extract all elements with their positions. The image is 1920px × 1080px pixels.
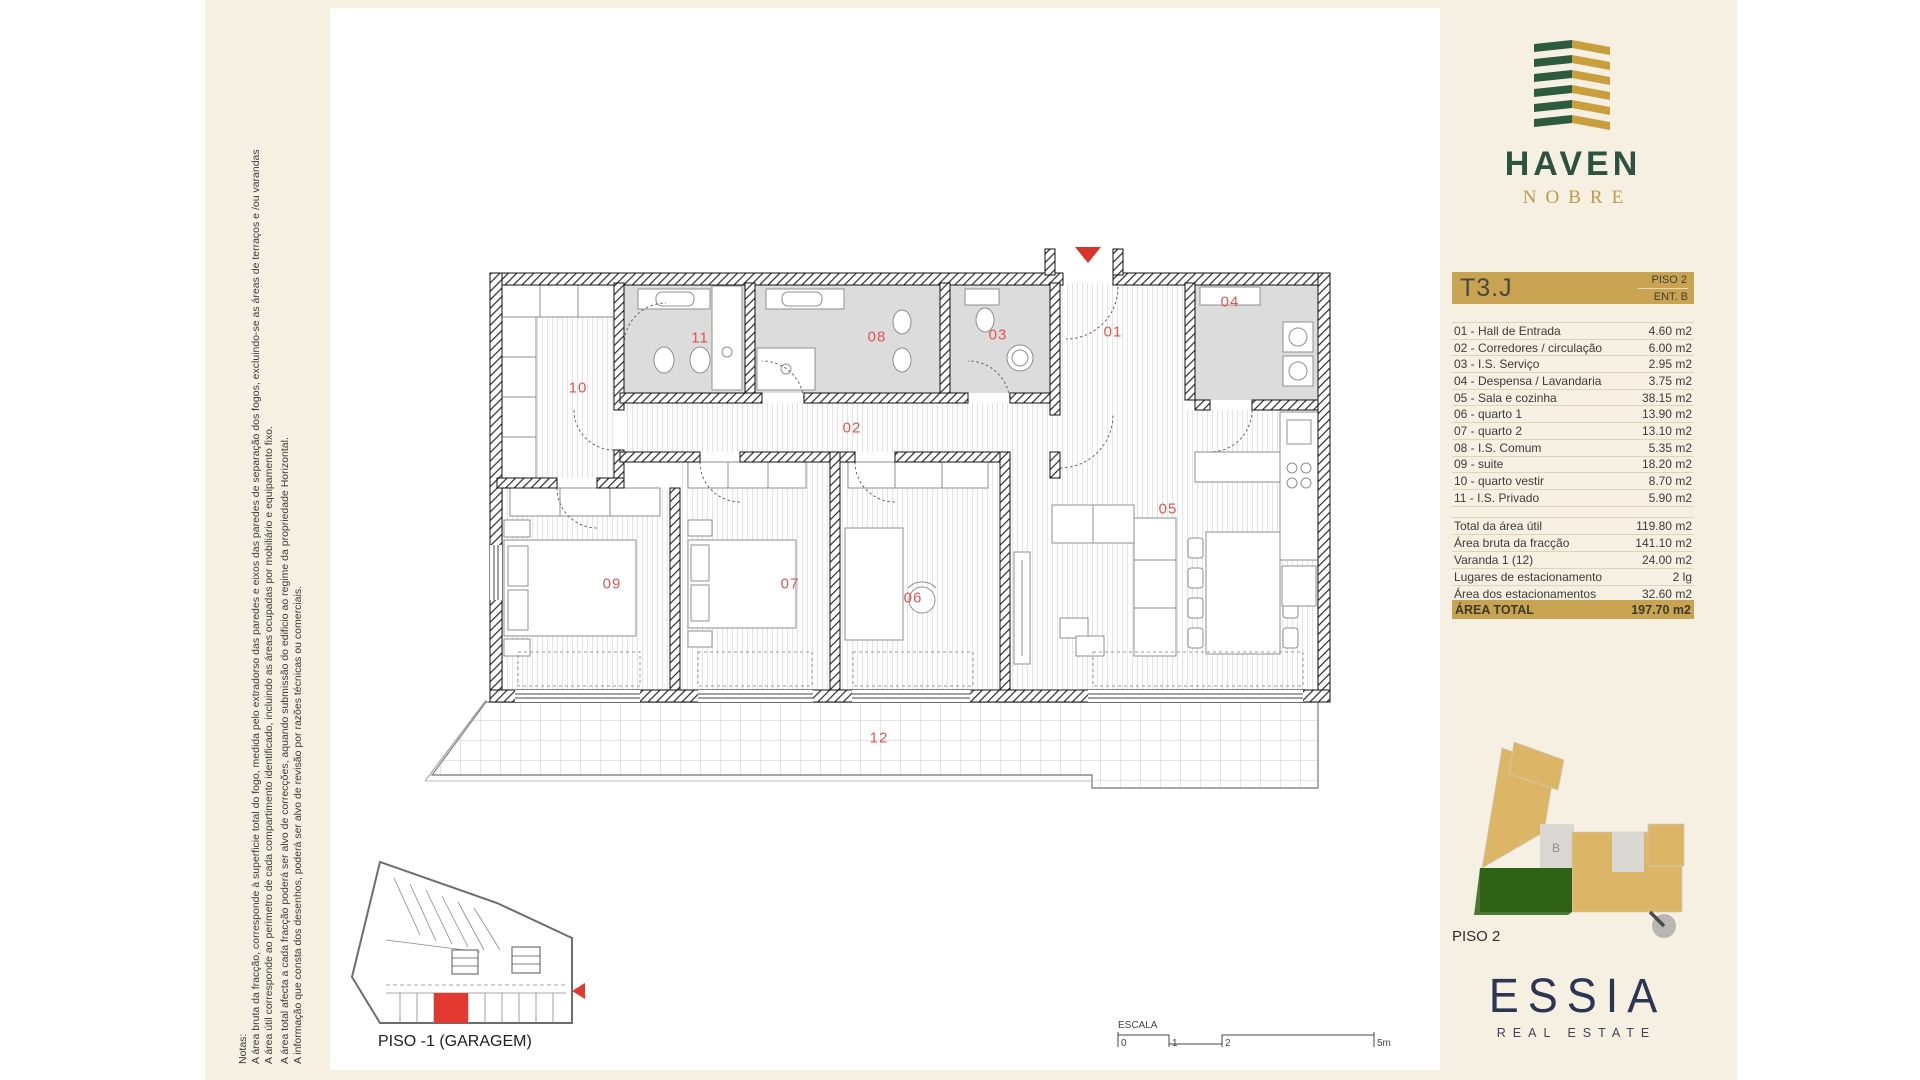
scale-tick: 0 [1121,1038,1127,1049]
table-row: 11 - I.S. Privado5.90 m2 [1452,490,1694,507]
highlighted-parking-bay [434,993,468,1023]
area-total-label: ÁREA TOTAL [1455,603,1534,617]
summary-table: Total da área útil119.80 m2Área bruta da… [1452,517,1694,602]
key-plan-floor-label: PISO 2 [1452,928,1694,945]
entrance-arrow [1075,247,1101,263]
unit-title-bar: T3.J PISO 2 ENT. B [1452,272,1694,304]
table-row: 10 - quarto vestir8.70 m2 [1452,473,1694,490]
table-row: 02 - Corredores / circulação6.00 m2 [1452,340,1694,357]
garage-key-plan: PISO -1 (GARAGEM) [352,862,585,1050]
scale-tick: 2 [1225,1038,1231,1049]
table-row: 01 - Hall de Entrada4.60 m2 [1452,323,1694,340]
table-row: 05 - Sala e cozinha38.15 m2 [1452,390,1694,407]
table-row: Varanda 1 (12)24.00 m2 [1452,552,1694,569]
brand-name: HAVEN [1452,145,1694,184]
area-total-value: 197.70 m2 [1631,603,1691,617]
unit-code: T3.J [1460,274,1513,303]
brand-subname: NOBRE [1452,187,1694,209]
scale-label: ESCALA [1118,1020,1158,1031]
key-plan: B [1452,740,1694,945]
footer-brand-name: ESSIA [1452,968,1694,1024]
table-row: 04 - Despensa / Lavandaria3.75 m2 [1452,373,1694,390]
key-plan-map: B [1452,740,1694,940]
footer-brand-sub: REAL ESTATE [1452,1026,1694,1040]
brand-logo-block: HAVEN NOBRE [1452,38,1694,209]
table-row: 08 - I.S. Comum5.35 m2 [1452,440,1694,457]
table-row: 03 - I.S. Serviço2.95 m2 [1452,356,1694,373]
garage-plan-label: PISO -1 (GARAGEM) [378,1033,532,1050]
area-table: 01 - Hall de Entrada4.60 m202 - Corredor… [1452,322,1694,507]
table-row: 07 - quarto 213.10 m2 [1452,423,1694,440]
footer-brand: ESSIA REAL ESTATE [1452,970,1694,1040]
scale-tick: 5m [1377,1038,1391,1049]
key-plan-unit-letter: B [1552,841,1560,855]
area-total-bar: ÁREA TOTAL 197.70 m2 [1452,600,1694,619]
table-row: Área bruta da fracção141.10 m2 [1452,535,1694,552]
balcony-terrace [425,700,1318,788]
unit-entrance: ENT. B [1638,289,1688,304]
table-row: Total da área útil119.80 m2 [1452,518,1694,535]
table-row: 06 - quarto 113.90 m2 [1452,406,1694,423]
garage-entry-arrow [572,983,585,999]
scale-bar [1118,1032,1374,1047]
unit-floor: PISO 2 [1638,273,1688,289]
scale-tick: 1 [1172,1038,1178,1049]
table-row: 09 - suite18.20 m2 [1452,457,1694,474]
table-row: Lugares de estacionamento2 lg [1452,569,1694,586]
haven-logo-icon [1532,38,1614,134]
